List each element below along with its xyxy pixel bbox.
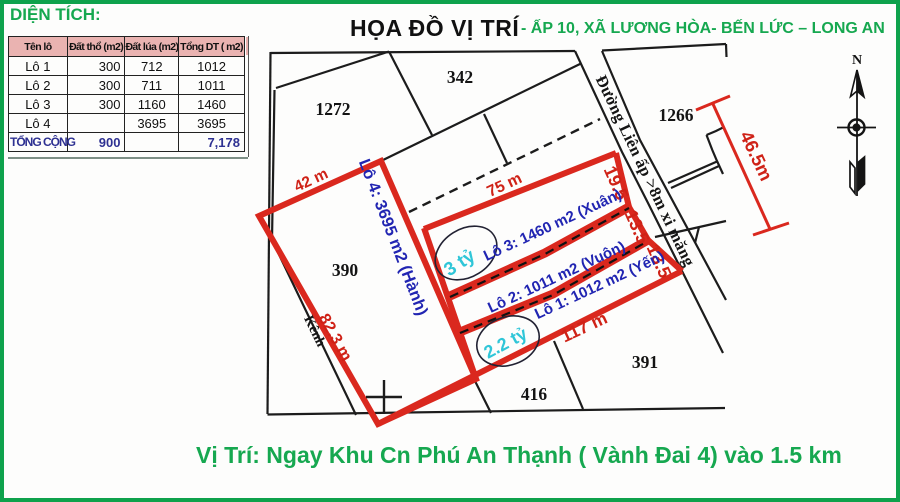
svg-text:342: 342 bbox=[447, 67, 473, 87]
svg-text:390: 390 bbox=[332, 260, 359, 280]
svg-text:1266: 1266 bbox=[659, 105, 694, 125]
svg-text:1272: 1272 bbox=[316, 99, 351, 119]
svg-text:117 m: 117 m bbox=[558, 308, 611, 347]
svg-text:391: 391 bbox=[632, 352, 658, 372]
svg-text:416: 416 bbox=[521, 384, 548, 404]
svg-text:13.5: 13.5 bbox=[621, 207, 654, 247]
svg-text:Lô 4: 3695 m2 (Hành): Lô 4: 3695 m2 (Hành) bbox=[355, 157, 431, 318]
svg-text:46.5m: 46.5m bbox=[736, 128, 777, 184]
svg-text:N: N bbox=[852, 53, 862, 68]
